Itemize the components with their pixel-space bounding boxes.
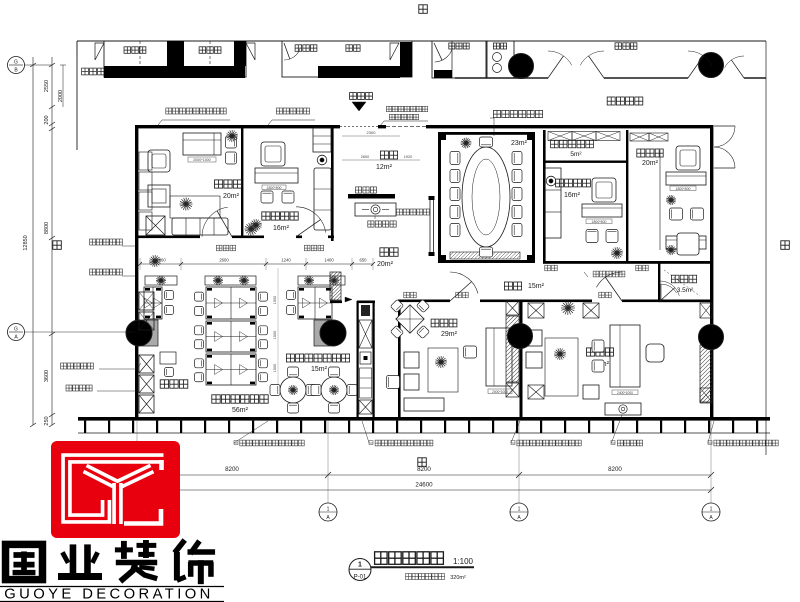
svg-text:1: 1: [710, 507, 713, 513]
svg-text:G: G: [14, 60, 18, 66]
svg-text:250: 250: [44, 416, 50, 425]
svg-text:3.5m²: 3.5m²: [677, 287, 694, 294]
svg-text:200: 200: [44, 115, 50, 124]
svg-text:8200: 8200: [225, 466, 239, 473]
svg-text:2550: 2550: [44, 80, 50, 92]
svg-text:1: 1: [358, 562, 362, 569]
svg-text:12m²: 12m²: [376, 164, 393, 171]
svg-text:1:100: 1:100: [453, 557, 474, 566]
svg-text:2600: 2600: [219, 258, 229, 263]
svg-text:1500: 1500: [273, 364, 277, 372]
svg-text:1: 1: [327, 507, 330, 513]
svg-text:24600: 24600: [415, 482, 433, 489]
svg-text:8200: 8200: [417, 466, 431, 473]
svg-text:3600: 3600: [44, 370, 50, 382]
svg-text:1: 1: [518, 507, 521, 513]
svg-text:1800*800: 1800*800: [592, 220, 607, 224]
svg-text:P-01: P-01: [354, 575, 367, 581]
svg-text:5m²: 5m²: [570, 151, 582, 158]
svg-text:1500: 1500: [273, 296, 277, 304]
svg-text:23m²: 23m²: [511, 140, 528, 147]
svg-text:8200: 8200: [608, 466, 622, 473]
svg-text:320m²: 320m²: [450, 575, 466, 581]
svg-text:16m²: 16m²: [564, 192, 581, 199]
svg-text:15m²: 15m²: [528, 283, 545, 290]
svg-text:8800: 8800: [44, 222, 50, 234]
svg-text:15m²: 15m²: [311, 366, 328, 373]
svg-text:1400: 1400: [324, 258, 334, 263]
svg-text:1800*800: 1800*800: [267, 186, 282, 190]
svg-text:1920: 1920: [404, 155, 412, 159]
svg-text:56m²: 56m²: [232, 407, 249, 414]
svg-text:1800*800: 1800*800: [676, 187, 691, 191]
svg-text:2400*1000: 2400*1000: [617, 391, 633, 395]
svg-text:2300: 2300: [367, 130, 377, 135]
svg-text:G: G: [14, 327, 18, 333]
svg-text:2000*1000: 2000*1000: [193, 158, 210, 162]
svg-text:1500: 1500: [273, 331, 277, 339]
svg-text:650: 650: [360, 258, 368, 263]
svg-text:GUOYE DECORATION: GUOYE DECORATION: [4, 587, 214, 602]
svg-text:20m²: 20m²: [642, 160, 659, 167]
svg-text:20m²: 20m²: [377, 261, 394, 268]
svg-text:1240: 1240: [281, 258, 291, 263]
svg-text:16m²: 16m²: [273, 225, 290, 232]
svg-text:2600: 2600: [361, 155, 369, 159]
svg-text:20m²: 20m²: [223, 193, 240, 200]
svg-text:12850: 12850: [23, 235, 29, 250]
svg-text:29m²: 29m²: [441, 331, 458, 338]
